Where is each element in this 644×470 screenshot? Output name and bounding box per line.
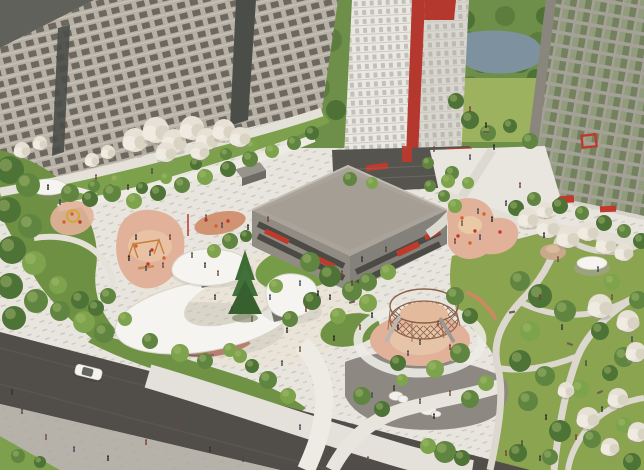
- bush: [461, 111, 479, 129]
- play-equipment: [146, 262, 149, 265]
- person-marker: [21, 408, 23, 414]
- bush: [527, 192, 541, 206]
- bush: [259, 371, 277, 389]
- bush: [461, 390, 479, 408]
- umbrella-right: [577, 257, 607, 270]
- person-marker: [539, 455, 541, 461]
- bush: [617, 224, 631, 238]
- blossom-tree: [576, 407, 599, 431]
- bush: [448, 93, 464, 109]
- bush: [396, 374, 408, 386]
- person-marker: [521, 440, 523, 446]
- person-marker: [205, 214, 207, 220]
- person-marker: [177, 424, 179, 430]
- bush: [207, 244, 221, 258]
- bush: [522, 133, 538, 149]
- person-marker: [162, 262, 164, 268]
- bush: [509, 444, 527, 462]
- person-marker: [247, 224, 249, 230]
- bush: [18, 214, 42, 238]
- bush: [126, 193, 142, 209]
- person-marker: [469, 106, 471, 112]
- play-equipment: [70, 212, 73, 215]
- play-equipment: [460, 216, 463, 219]
- person-marker: [407, 350, 409, 356]
- person-marker: [371, 312, 373, 318]
- person-marker: [127, 184, 129, 190]
- bush: [88, 300, 104, 316]
- bush: [142, 333, 158, 349]
- blossom-tree: [578, 221, 599, 243]
- person-marker: [47, 184, 49, 190]
- bush: [319, 265, 341, 287]
- bush: [520, 321, 540, 341]
- bush: [88, 180, 100, 192]
- bush: [462, 177, 474, 189]
- backdrop-tree: [495, 6, 515, 26]
- person-marker: [341, 270, 343, 276]
- bush: [220, 161, 236, 177]
- person-marker: [575, 434, 577, 440]
- blossom-tree: [556, 226, 579, 250]
- bush: [503, 119, 517, 133]
- person-marker: [361, 256, 363, 262]
- bush: [374, 401, 390, 417]
- person-marker: [329, 294, 331, 300]
- bush: [242, 151, 258, 167]
- person-marker: [505, 200, 507, 206]
- person-marker: [539, 294, 541, 300]
- blossom-tree: [191, 142, 210, 162]
- person-marker: [359, 324, 361, 330]
- person-marker: [151, 168, 153, 174]
- play-equipment: [473, 229, 476, 232]
- bush: [353, 387, 371, 405]
- blossom-tree: [101, 145, 116, 160]
- bush: [94, 323, 114, 343]
- person-marker: [281, 360, 283, 366]
- person-marker: [135, 234, 137, 240]
- bush: [422, 157, 434, 169]
- play-mound-top: [546, 245, 560, 253]
- bush: [136, 182, 148, 194]
- bush: [359, 294, 377, 312]
- bush: [287, 136, 301, 150]
- bush: [110, 174, 122, 186]
- person-marker: [519, 182, 521, 188]
- bush: [118, 312, 132, 326]
- person-marker: [209, 446, 211, 452]
- person-marker: [299, 280, 301, 286]
- person-marker: [11, 389, 13, 395]
- person-marker: [145, 439, 147, 445]
- bush: [366, 177, 378, 189]
- bush: [509, 350, 531, 372]
- bush: [596, 215, 612, 231]
- person-marker: [393, 385, 395, 391]
- bush: [549, 420, 571, 442]
- person-marker: [169, 234, 171, 240]
- bush: [420, 438, 436, 454]
- person-marker: [477, 208, 479, 214]
- backdrop-tree: [326, 100, 346, 120]
- bush: [22, 251, 46, 275]
- blossom-tree: [156, 142, 177, 164]
- person-marker: [231, 306, 233, 312]
- person-marker: [45, 434, 47, 440]
- bush: [542, 449, 558, 465]
- render-canvas: [0, 0, 644, 470]
- person-marker: [305, 306, 307, 312]
- play-equipment: [134, 244, 137, 247]
- person-marker: [299, 346, 301, 352]
- bush: [34, 456, 46, 468]
- bush: [197, 353, 213, 369]
- bush: [269, 279, 283, 293]
- person-marker: [454, 238, 456, 244]
- person-marker: [485, 122, 487, 128]
- person-marker: [397, 324, 399, 330]
- bush: [380, 264, 396, 280]
- bush: [305, 126, 319, 140]
- bush: [390, 355, 406, 371]
- blossom-tree: [33, 136, 48, 151]
- person-marker: [601, 406, 603, 412]
- bush: [359, 273, 377, 291]
- bush: [438, 190, 450, 202]
- play-equipment: [78, 220, 81, 223]
- person-marker: [299, 424, 301, 430]
- person-marker: [433, 146, 435, 152]
- bush: [197, 169, 213, 185]
- play-equipment: [162, 256, 165, 259]
- blossom-tree: [587, 294, 612, 320]
- person-marker: [269, 294, 271, 300]
- bush: [280, 388, 296, 404]
- person-marker: [221, 222, 223, 228]
- bush: [591, 322, 609, 340]
- bush: [100, 288, 116, 304]
- blossom-tree: [558, 382, 575, 399]
- person-marker: [367, 456, 369, 462]
- person-marker: [585, 360, 587, 366]
- bush: [448, 199, 462, 213]
- bench: [483, 131, 489, 133]
- tower-red-crown: [424, 0, 456, 20]
- play-equipment: [456, 234, 459, 237]
- bush: [265, 144, 279, 158]
- blossom-tree: [601, 438, 620, 458]
- blossom-tree: [596, 234, 617, 256]
- person-marker: [128, 255, 130, 261]
- person-marker: [557, 256, 559, 262]
- person-marker: [461, 220, 463, 226]
- play-equipment: [62, 220, 65, 223]
- blossom-tree: [230, 127, 251, 149]
- blossom-tree: [615, 243, 634, 263]
- bush: [150, 185, 166, 201]
- bush: [434, 441, 456, 463]
- person-marker: [73, 446, 75, 452]
- person-marker: [204, 262, 206, 268]
- bush: [222, 233, 238, 249]
- bush: [282, 311, 298, 327]
- person-marker: [491, 216, 493, 222]
- bush: [174, 177, 190, 193]
- person-marker: [545, 414, 547, 420]
- bush: [454, 450, 470, 466]
- bush: [554, 300, 576, 322]
- person-marker: [449, 390, 451, 396]
- bush: [343, 172, 357, 186]
- bush: [82, 191, 98, 207]
- person-marker: [419, 398, 421, 404]
- bush: [50, 301, 70, 321]
- person-marker: [419, 339, 421, 345]
- bush: [604, 274, 620, 290]
- person-marker: [433, 413, 435, 419]
- play-equipment: [214, 224, 217, 227]
- person-marker: [217, 270, 219, 276]
- person-marker: [251, 316, 253, 322]
- person-marker: [267, 216, 269, 222]
- bush: [535, 366, 555, 386]
- bush: [330, 308, 346, 324]
- bush: [300, 252, 320, 272]
- play-equipment: [498, 230, 501, 233]
- play-equipment: [482, 212, 485, 215]
- tower-balcony-grid: [344, 0, 469, 157]
- bush: [49, 276, 67, 294]
- bush: [24, 289, 48, 313]
- person-marker: [286, 327, 288, 333]
- person-marker: [611, 294, 613, 300]
- bush: [446, 287, 464, 305]
- person-marker: [107, 455, 109, 461]
- person-marker: [479, 234, 481, 240]
- bush: [552, 198, 568, 214]
- bush: [16, 173, 40, 197]
- bush: [233, 349, 247, 363]
- person-marker: [214, 294, 216, 300]
- blossom-tree: [518, 208, 539, 230]
- person-marker: [149, 250, 151, 256]
- bush: [450, 343, 470, 363]
- person-marker: [437, 320, 439, 326]
- person-marker: [385, 246, 387, 252]
- bush: [426, 360, 444, 378]
- bush: [583, 430, 601, 448]
- spruce-shadow: [232, 314, 258, 323]
- bush: [71, 291, 89, 309]
- blossom-tree: [85, 153, 100, 168]
- person-marker: [95, 174, 97, 180]
- person-marker: [242, 456, 244, 462]
- bush: [462, 308, 478, 324]
- masterplan-render: [0, 0, 644, 470]
- bush: [240, 230, 252, 242]
- person-marker: [145, 265, 147, 271]
- person-marker: [351, 280, 353, 286]
- bush: [518, 391, 538, 411]
- person-marker: [371, 392, 373, 398]
- blossom-tree: [616, 310, 639, 334]
- bush: [171, 344, 189, 362]
- person-marker: [561, 324, 563, 330]
- person-marker: [59, 199, 61, 205]
- person-marker: [317, 290, 319, 296]
- person-marker: [505, 450, 507, 456]
- bush: [61, 184, 79, 202]
- bush: [11, 449, 25, 463]
- person-marker: [469, 154, 471, 160]
- blossom-tree: [537, 202, 554, 219]
- person-marker: [333, 335, 335, 341]
- bush: [103, 184, 121, 202]
- bush: [602, 365, 618, 381]
- person-marker: [329, 446, 331, 452]
- bush: [2, 306, 26, 330]
- bush: [160, 172, 172, 184]
- person-marker: [597, 266, 599, 272]
- play-equipment: [226, 219, 229, 222]
- blossom-tree: [608, 388, 629, 410]
- person-marker: [493, 144, 495, 150]
- bush: [245, 359, 259, 373]
- bush: [441, 174, 455, 188]
- bush: [220, 148, 232, 160]
- play-equipment: [468, 241, 471, 244]
- bush: [575, 206, 589, 220]
- person-marker: [449, 344, 451, 350]
- person-marker: [631, 336, 633, 342]
- bush: [478, 375, 494, 391]
- person-marker: [543, 232, 545, 238]
- person-marker: [191, 252, 193, 258]
- blossom-tree: [536, 216, 559, 240]
- blossom-tree: [14, 142, 31, 159]
- bush: [424, 180, 436, 192]
- bush: [510, 271, 530, 291]
